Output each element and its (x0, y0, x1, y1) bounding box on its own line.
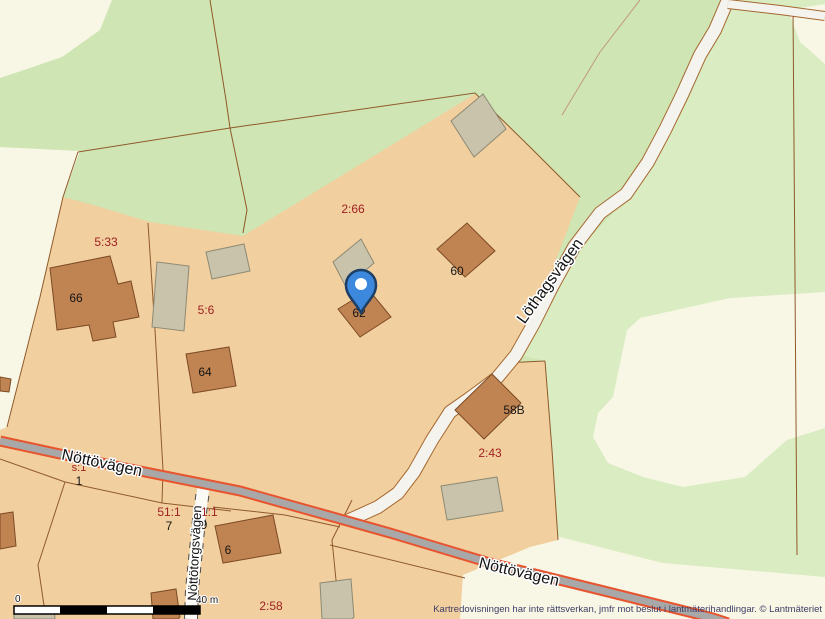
scale-bar-end: 40 m (196, 595, 218, 606)
parcel-label-5-6: 5:6 (198, 303, 215, 317)
building-left-edge-a (0, 512, 16, 549)
address-label-66: 66 (69, 291, 83, 305)
attribution-text: Kartredovisningen har inte rättsverkan, … (433, 604, 822, 615)
parcel-label-2-66: 2:66 (341, 202, 365, 216)
location-pin-center-dot (355, 278, 367, 290)
building-left-edge-b (0, 377, 11, 392)
map-canvas[interactable]: 2:66 5:33 5:6 2:43 2:58 s:1 51:1 51:1 66… (0, 0, 825, 619)
outbuilding-bottom-center (320, 579, 354, 619)
parcel-label-51-1-a: 51:1 (157, 505, 181, 519)
parcel-label-5-33: 5:33 (94, 235, 118, 249)
address-label-1: 1 (76, 474, 83, 488)
scale-bar-start: 0 (15, 594, 21, 605)
address-label-64: 64 (198, 365, 212, 379)
parcel-label-2-43: 2:43 (478, 446, 502, 460)
address-label-58b: 58B (503, 403, 524, 417)
address-label-6: 6 (225, 543, 232, 557)
parcel-label-2-58: 2:58 (259, 599, 283, 613)
address-label-7: 7 (166, 519, 173, 533)
address-label-60: 60 (450, 264, 464, 278)
outbuilding-5-6-a (152, 262, 189, 331)
